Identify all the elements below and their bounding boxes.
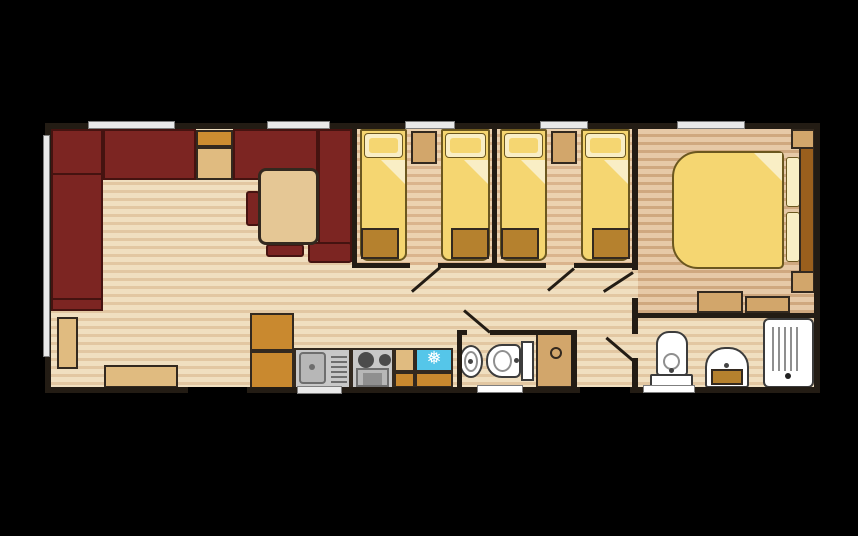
shower-line-5 <box>796 327 798 371</box>
lounge-sofa-seam-2 <box>53 298 101 300</box>
lounge-sofa-seam-1 <box>53 173 101 175</box>
wall-bottom-1 <box>45 387 188 393</box>
wall-bedroom2-master <box>632 123 638 270</box>
ensuite-toilet-flush-dot <box>669 368 674 373</box>
kitchen-drainer-line-3 <box>331 366 347 368</box>
shower-drain <box>785 373 791 379</box>
shower-line-4 <box>790 327 792 371</box>
bed1-b-duvet-fold <box>464 160 488 184</box>
wall-wc-left <box>457 332 462 390</box>
kitchen-tall-unit-bottom <box>250 351 294 389</box>
shower-line-1 <box>772 327 774 371</box>
window-top-bedroom2 <box>540 121 588 129</box>
lounge-bench <box>104 365 178 388</box>
lounge-sofa-left <box>51 129 103 311</box>
window-left <box>43 135 50 357</box>
wall-wc-right <box>571 332 577 389</box>
kitchen-drainer-line-4 <box>331 371 347 373</box>
wall-hall-lower <box>632 358 638 390</box>
ensuite-basin-drain <box>724 363 729 368</box>
kitchen-counter-base <box>394 372 415 388</box>
kitchen-drainer-line-6 <box>331 381 347 383</box>
window-top-bedroom1 <box>405 121 455 129</box>
kitchen-counter <box>394 348 415 372</box>
wall-bedroom2-bottom-b <box>574 263 638 268</box>
ensuite-basin-cabinet <box>711 369 743 385</box>
bed1-a-footbox <box>361 228 399 259</box>
wall-master-ensuite <box>632 313 820 318</box>
lounge-console-base <box>196 147 233 180</box>
wall-right <box>814 123 820 393</box>
wc-toilet-rim <box>493 350 512 372</box>
ensuite-toilet-plinth <box>643 385 695 393</box>
wall-wc-top-b <box>490 330 577 335</box>
kitchen-drainer-line-5 <box>331 376 347 378</box>
bed1-a-pillow-inner <box>369 138 398 153</box>
wall-bedroom1-bottom-a <box>352 263 410 268</box>
cooker-burner-small <box>379 354 391 366</box>
wall-bedroom1-bottom-b <box>438 263 497 268</box>
bed1-b-pillow-inner <box>450 138 481 153</box>
floor-plan: ❅ <box>0 0 858 536</box>
wc-basin-drain <box>468 359 473 364</box>
wall-bedroom2-bottom-a <box>497 263 546 268</box>
bed1-bedside-table <box>411 131 437 164</box>
bed2-d-footbox <box>592 228 630 259</box>
master-wardrobe <box>799 147 815 273</box>
bed2-d-duvet-fold <box>604 160 628 184</box>
wall-bedroom1-bedroom2 <box>492 123 497 268</box>
bed1-a-duvet-fold <box>381 160 405 184</box>
fridge-cabinet <box>415 372 453 388</box>
wc-toilet-cistern <box>521 341 534 381</box>
wc-toilet-plinth <box>477 385 523 393</box>
window-top-lounge-2 <box>267 121 330 129</box>
dining-table <box>258 168 319 245</box>
cooker-oven-door <box>363 373 382 385</box>
bed2-c-footbox <box>501 228 539 259</box>
lounge-sofa-top-left <box>103 129 196 180</box>
wall-bedroom1-left <box>352 123 357 268</box>
window-bottom-kitchen <box>297 386 342 394</box>
lounge-console-top <box>196 130 233 147</box>
master-pillow-1 <box>786 157 800 207</box>
window-top-lounge-1 <box>88 121 175 129</box>
lounge-sofa-return-arm <box>308 242 352 263</box>
master-chest-2 <box>745 296 790 313</box>
master-pillow-2 <box>786 212 800 262</box>
wc-cupboard-knob <box>550 347 562 359</box>
shower-line-2 <box>778 327 780 371</box>
bed2-c-pillow-inner <box>509 138 538 153</box>
cooker-burner-large <box>358 352 374 368</box>
wc-toilet-flush-dot <box>514 358 519 363</box>
bed2-bedside-table <box>551 131 577 164</box>
lounge-side-table <box>57 317 78 369</box>
master-chest-1 <box>697 291 743 313</box>
master-shelf-top <box>791 129 815 149</box>
bed1-b-footbox <box>451 228 489 259</box>
bed2-c-duvet-fold <box>521 160 545 184</box>
fridge-snowflake-icon: ❅ <box>415 346 453 372</box>
window-top-master <box>677 121 745 129</box>
kitchen-drainer-line-2 <box>331 361 347 363</box>
kitchen-drainer-line-1 <box>331 356 347 358</box>
master-duvet-fold <box>754 153 782 181</box>
master-shelf-bottom <box>791 271 815 293</box>
bed2-d-pillow-inner <box>590 138 621 153</box>
kitchen-sink-tap <box>309 364 315 370</box>
shower-line-3 <box>784 327 786 371</box>
kitchen-tall-unit-top <box>250 313 294 351</box>
wc-cupboard <box>536 332 573 388</box>
dining-chair-bottom <box>266 244 304 257</box>
